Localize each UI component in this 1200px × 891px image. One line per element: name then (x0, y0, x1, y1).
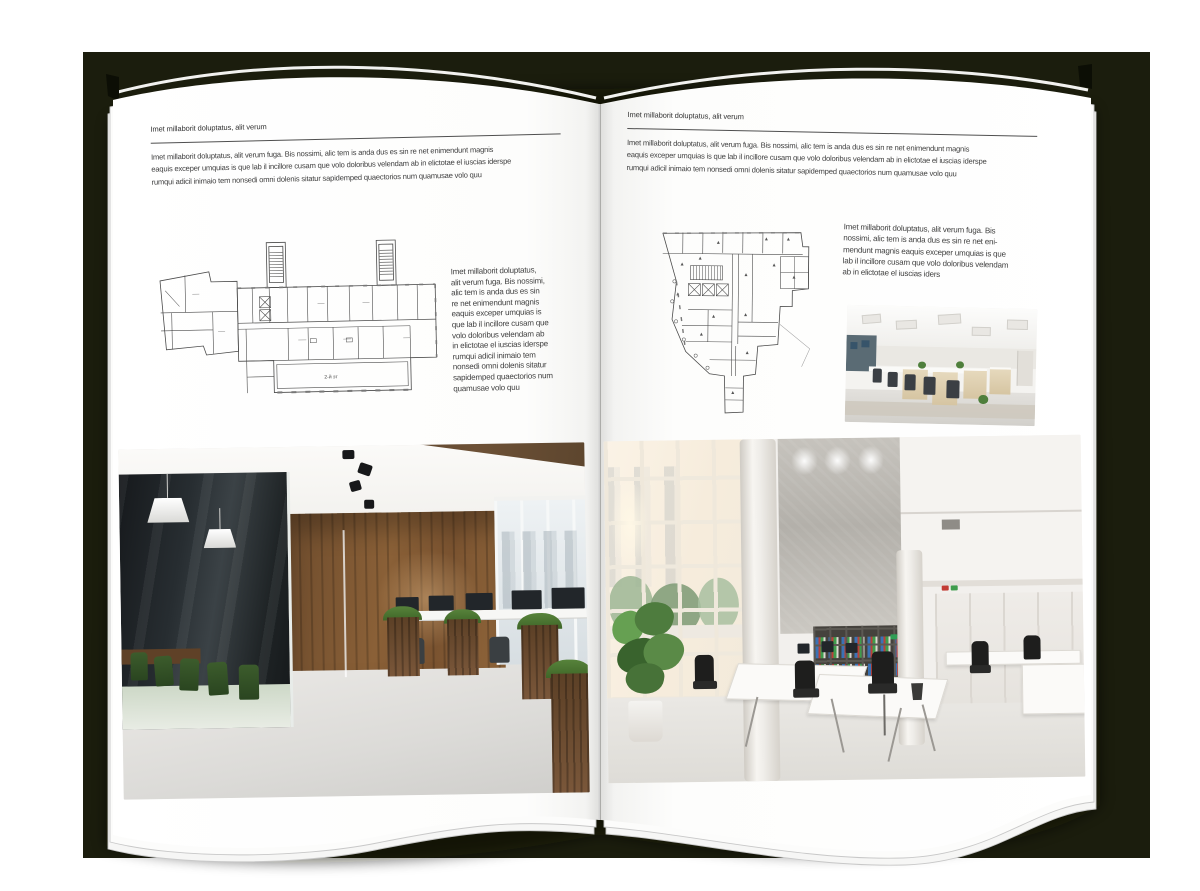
stair-tower (266, 242, 286, 287)
meeting-room-glass (119, 471, 294, 729)
right-intro-block: Imet millaborit doluptatus, alit verum I… (626, 110, 1041, 182)
office-chair (946, 380, 960, 399)
plant (956, 361, 964, 368)
plant-pot (629, 700, 663, 741)
monitor (845, 643, 858, 653)
downlight-glow (857, 444, 886, 475)
office-chair (795, 661, 815, 690)
page-corner-dark-right (1078, 64, 1092, 89)
green-chair (131, 652, 148, 680)
downlight-glow (823, 445, 852, 476)
chair-seat (693, 681, 717, 690)
office-chair (872, 369, 882, 383)
floor-plan-left: 2-й эт (156, 237, 444, 417)
wood-planter (447, 619, 479, 675)
heading-rule (627, 128, 1037, 137)
monitor (428, 595, 453, 611)
floor-plan-right (651, 225, 815, 421)
spotlight (342, 449, 354, 458)
ceiling-light (896, 320, 917, 330)
elevator-shaft (688, 284, 728, 296)
office-chair (489, 636, 509, 663)
desk-cabinet (1022, 664, 1086, 715)
floor-plan-label: 2-й эт (324, 373, 338, 380)
green-chair (238, 665, 259, 700)
magazine-mockup: Imet millaborit doluptatus, alit verum I… (0, 0, 1200, 891)
office-photo-small-workspace (845, 305, 1038, 426)
plant (978, 394, 988, 404)
column (740, 439, 781, 781)
downlight-glow (790, 445, 819, 476)
monitor (797, 644, 810, 654)
spotlight (364, 500, 374, 509)
chair-seat (868, 684, 897, 695)
office-chair (923, 377, 936, 395)
side-text-column: Imet millaborit doluptatus, alit verum f… (842, 221, 1043, 283)
page-spine (599, 104, 601, 820)
office-chair (1024, 635, 1041, 659)
office-chair (695, 655, 714, 683)
safety-sign (951, 585, 958, 591)
office-photo-atrium (604, 435, 1086, 784)
left-intro-block: Imet millaborit doluptatus, alit verum I… (150, 115, 565, 189)
office-photo-wood-loft (118, 442, 589, 799)
monitor (552, 588, 585, 610)
safety-sign (942, 585, 949, 591)
office-chair (887, 371, 898, 386)
plant (918, 361, 926, 368)
monitor (821, 642, 834, 652)
balcony-rail (881, 509, 1081, 514)
page-corner-dark-left (106, 74, 119, 101)
office-chair (904, 374, 916, 391)
heading-rule (151, 133, 561, 143)
ceiling-light (972, 326, 991, 335)
tv-screen (862, 340, 870, 347)
monitor (512, 590, 542, 609)
meeting-room-floor (122, 684, 290, 730)
cubicle-cabinet (990, 367, 1012, 395)
ceiling-light (1006, 319, 1027, 330)
office-chair (871, 651, 893, 685)
green-chair (207, 661, 229, 696)
wood-planter (551, 673, 590, 793)
door (1017, 351, 1034, 386)
side-text-column: Imet millaborit doluptatus, alit verum f… (451, 265, 572, 395)
intro-paragraph: Imet millaborit doluptatus, alit verum f… (626, 137, 1041, 182)
chair-seat (969, 665, 991, 673)
vent-grille (942, 520, 960, 530)
green-chair (153, 655, 173, 686)
monitor (465, 593, 492, 610)
green-chair (179, 658, 199, 690)
wood-planter (387, 616, 421, 676)
ceiling-light (938, 313, 962, 325)
office-chair (971, 641, 989, 667)
chair-seat (793, 688, 819, 697)
stair-tower (376, 240, 396, 285)
tv-screen (850, 342, 858, 349)
